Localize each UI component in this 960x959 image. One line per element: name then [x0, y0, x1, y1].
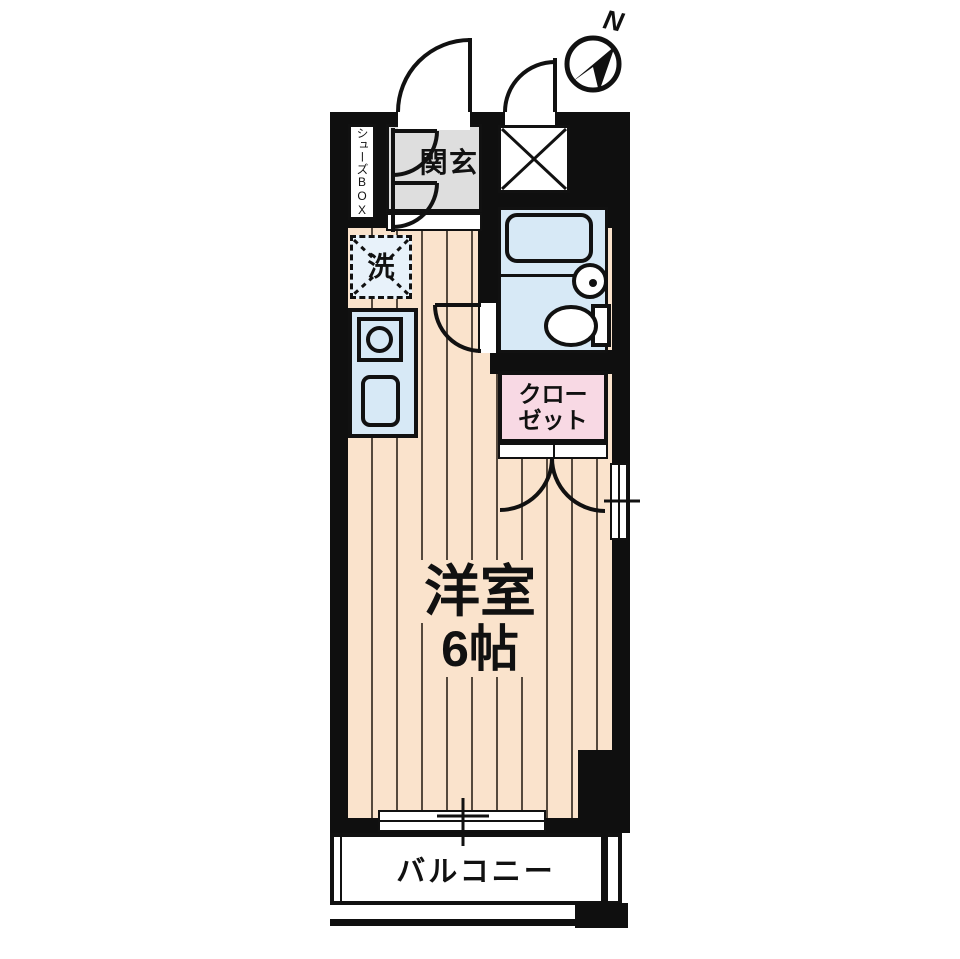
- closet-label: クロー ゼット: [519, 381, 588, 434]
- stove-burner-icon: [366, 326, 393, 353]
- main-room-label: 洋室 6帖: [348, 562, 612, 676]
- laundry-space: 洗: [350, 235, 412, 299]
- compass-icon: [567, 38, 619, 92]
- balcony-label: バルコニー: [396, 848, 555, 890]
- shoes-box-label: シューズBOX: [356, 127, 368, 217]
- entrance-step: [386, 213, 482, 231]
- north-label: N: [600, 4, 646, 46]
- closet: クロー ゼット: [498, 371, 608, 443]
- balcony-partition: [601, 833, 608, 905]
- kitchen-sink: [361, 375, 400, 427]
- floor-plan: シューズBOX 玄関 洗 クロー ゼット 洋室 6帖 バルコニー N: [0, 0, 960, 959]
- closet-doors-divider: [553, 445, 555, 457]
- main-room-name: 洋室: [418, 560, 542, 623]
- entrance-door-icon: [398, 38, 470, 112]
- bathroom-divider: [498, 274, 608, 277]
- laundry-label: 洗: [366, 253, 397, 282]
- bathroom-door-opening: [480, 303, 496, 353]
- entrance-area: 玄関: [386, 124, 482, 212]
- sliding-window: [378, 810, 546, 832]
- entrance-door-opening: [398, 112, 470, 130]
- balcony-corner-wall: [575, 903, 628, 928]
- closet-label-line1: クロー: [519, 381, 588, 407]
- wall-notch: [578, 750, 630, 833]
- closet-doors: [498, 443, 608, 459]
- pipe-shaft: [498, 125, 570, 193]
- main-room-size: 6帖: [433, 621, 527, 677]
- entrance-label: 玄関: [417, 148, 476, 189]
- pipe-shaft-door-icon: [505, 58, 555, 112]
- closet-label-line2: ゼット: [519, 407, 588, 433]
- bathtub: [505, 213, 593, 263]
- balcony: バルコニー: [330, 833, 622, 905]
- side-window: [610, 463, 628, 540]
- pipe-shaft-door-opening: [505, 112, 555, 125]
- shoes-box: シューズBOX: [348, 124, 376, 220]
- balcony-edge-line: [330, 919, 576, 926]
